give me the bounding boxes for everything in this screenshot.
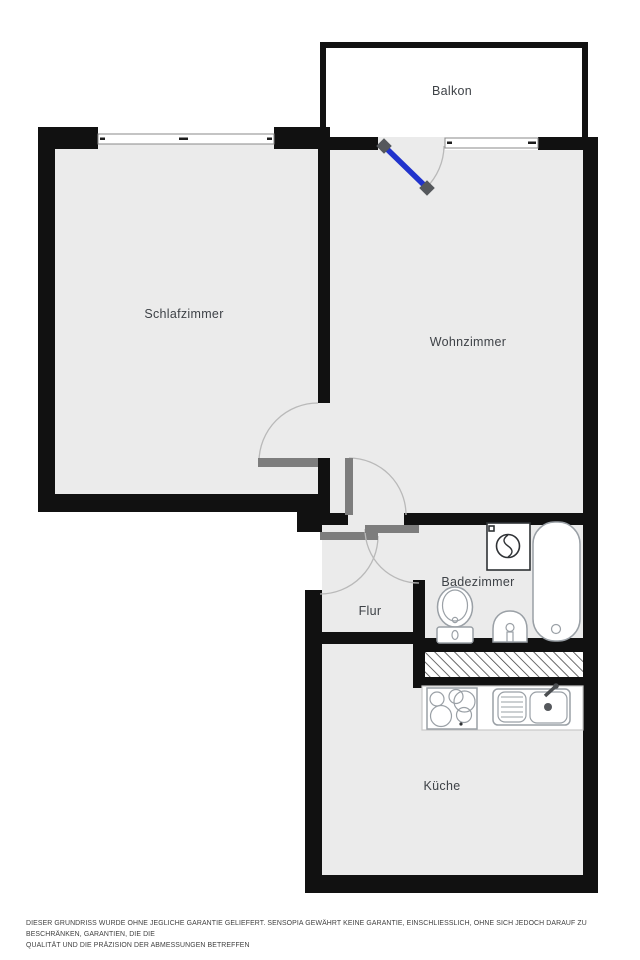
schlafzimmer-doorway-floor <box>318 403 330 460</box>
disclaimer-line-2: QUALITÄT UND DIE PRÄZISION DER ABMESSUNG… <box>26 940 626 951</box>
room-label-badezimmer: Badezimmer <box>441 575 514 589</box>
window-tick-icon <box>267 138 272 141</box>
bathtub-icon <box>533 522 580 641</box>
window-tick-icon <box>179 138 188 141</box>
bad-door-leaf <box>365 525 419 533</box>
wohnzimmer-door-leaf <box>345 458 353 515</box>
room-label-schlafzimmer: Schlafzimmer <box>144 307 223 321</box>
stove-knob-dot-icon <box>459 722 462 725</box>
schlafzimmer-door-leaf <box>258 458 318 467</box>
wall-wohn-bottom-left <box>318 513 348 525</box>
wall-balcony-top <box>320 42 588 48</box>
wall-schlaf-bottom <box>38 494 318 512</box>
kitchen-fixtures <box>422 683 583 730</box>
window-tick-icon <box>447 142 452 145</box>
sink-drain-icon <box>544 703 552 711</box>
floor-plan-drawing: Balkon Schlafzimmer Wohnzimmer Badezimme… <box>0 0 640 960</box>
window-tick-icon <box>528 142 536 145</box>
wohnzimmer-doorway-floor <box>348 513 404 525</box>
toilet-tank-icon <box>437 627 473 643</box>
wall-schlaf-left <box>38 127 55 512</box>
wall-flur-bottom <box>322 632 413 644</box>
wall-balcony-right <box>582 42 588 137</box>
washbasin-icon <box>493 611 527 642</box>
wohnzimmer-floor <box>330 150 583 513</box>
room-label-kueche: Küche <box>424 779 461 793</box>
room-label-wohnzimmer: Wohnzimmer <box>430 335 506 349</box>
disclaimer-line-1: DIESER GRUNDRISS WURDE OHNE JEGLICHE GAR… <box>26 918 626 940</box>
wall-balcony-left <box>320 42 326 137</box>
room-label-balkon: Balkon <box>432 84 472 98</box>
wall-divider-stub <box>318 458 330 513</box>
wohnzimmer-window <box>445 138 538 148</box>
sink-faucet-base-icon <box>553 683 559 689</box>
wall-entry-corner <box>297 512 322 532</box>
room-label-flur: Flur <box>359 604 382 618</box>
wall-divider-schlaf-wohn <box>318 137 330 403</box>
wall-kueche-bottom <box>305 875 598 893</box>
wall-left-flur-kueche <box>305 590 322 893</box>
floor-plan-page: Balkon Schlafzimmer Wohnzimmer Badezimme… <box>0 0 640 960</box>
window-tick-icon <box>100 138 105 141</box>
washing-machine-drawer-icon <box>489 526 494 531</box>
entrance-door-leaf <box>320 532 378 540</box>
bad-doorway-floor <box>413 525 425 580</box>
wall-bad-left <box>413 580 425 688</box>
disclaimer-text: DIESER GRUNDRISS WURDE OHNE JEGLICHE GAR… <box>26 918 626 951</box>
shaft-hatch <box>425 652 583 677</box>
